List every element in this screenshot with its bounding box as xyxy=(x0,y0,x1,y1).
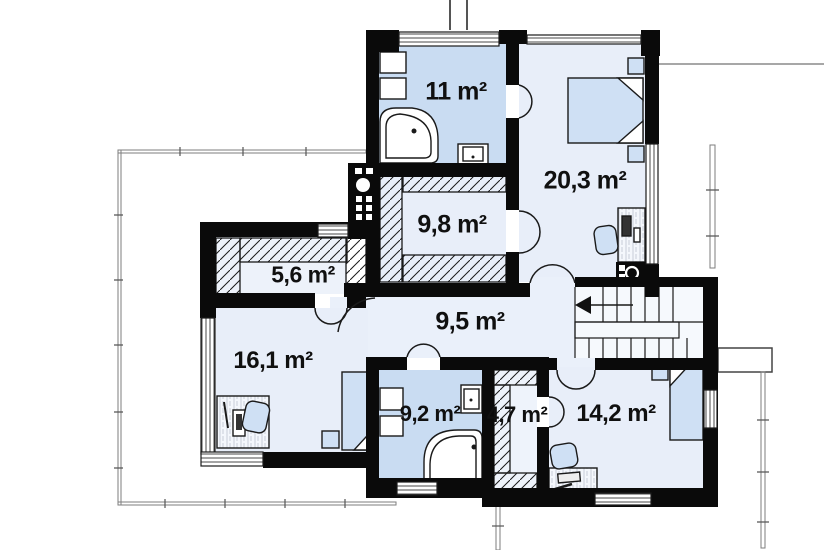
chair-icon xyxy=(549,442,579,470)
window xyxy=(397,482,437,495)
chair-icon xyxy=(593,225,619,256)
window xyxy=(201,452,263,466)
bathtub-icon xyxy=(380,108,438,163)
room-label-bathroom-bottom: 9,2 m² xyxy=(399,403,461,425)
shelf-icon xyxy=(494,473,537,490)
shelf-icon xyxy=(240,238,347,262)
nightstand-icon xyxy=(322,431,339,448)
shelf-icon xyxy=(403,255,506,282)
window xyxy=(527,35,641,44)
shelf-icon xyxy=(494,385,510,473)
keyboard-icon xyxy=(634,228,640,242)
shelf-icon xyxy=(494,370,537,385)
entry-step-right xyxy=(718,348,772,548)
shelf-icon xyxy=(380,166,402,282)
radiator-icon xyxy=(380,52,406,73)
laptop-icon xyxy=(558,472,581,483)
room-label-bathroom-top: 11 m² xyxy=(425,79,486,105)
radiator-icon xyxy=(380,78,406,99)
room-label-wardrobe: 9,8 m² xyxy=(417,212,486,238)
room-label-bedroom-right: 20,3 m² xyxy=(544,168,627,194)
window xyxy=(201,318,215,454)
window xyxy=(318,224,348,237)
chimney xyxy=(450,0,467,30)
floor-plan-drawing xyxy=(0,0,825,550)
floor-plan: 11 m² 20,3 m² 9,8 m² 5,6 m² 9,5 m² 16,1 … xyxy=(0,0,825,550)
window xyxy=(595,493,651,505)
sink-icon xyxy=(461,385,482,413)
window xyxy=(399,32,499,46)
room-label-closet-small: 4,7 m² xyxy=(486,404,548,426)
shelf-icon xyxy=(216,238,240,294)
monitor-icon xyxy=(622,216,631,236)
nightstand-icon xyxy=(628,146,644,162)
room-label-bedroom-left: 16,1 m² xyxy=(233,349,312,373)
nightstand-icon xyxy=(628,58,644,74)
window xyxy=(646,144,658,264)
room-label-closet-left: 5,6 m² xyxy=(271,263,334,286)
radiator-icon xyxy=(704,390,717,428)
sink-icon xyxy=(458,144,488,164)
balcony-railing-right xyxy=(706,145,719,268)
room-label-bedroom-bottom: 14,2 m² xyxy=(576,402,655,426)
room-label-hallway: 9,5 m² xyxy=(435,309,504,335)
